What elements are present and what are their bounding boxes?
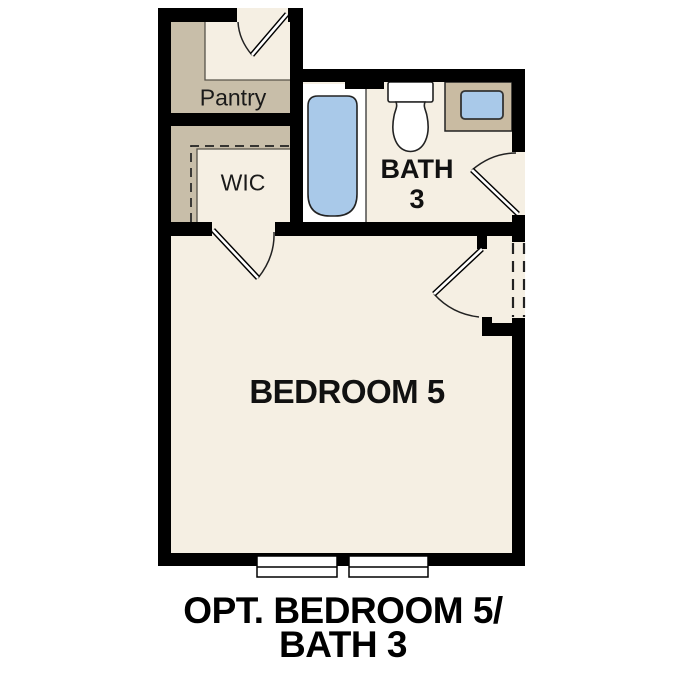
floorplan-drawing	[0, 0, 687, 687]
floorplan-canvas: Pantry WIC BATH3 BEDROOM 5 OPT. BEDROOM …	[0, 0, 687, 687]
toilet-tank	[388, 82, 433, 102]
wall-vestibule-bottom	[482, 323, 514, 336]
wall-right-lower	[512, 318, 525, 566]
wall-tub-stub	[345, 82, 384, 89]
wall-right-upper	[512, 69, 525, 152]
wall-top-left	[158, 8, 237, 22]
plan-caption: OPT. BEDROOM 5/BATH 3	[183, 594, 502, 662]
wall-bedroom-door-stub	[477, 236, 487, 249]
bath-door-gap	[512, 152, 525, 215]
wall-right-middle	[512, 215, 525, 242]
wall-bottom	[158, 553, 525, 566]
bath-label-line1: BATH	[381, 154, 454, 184]
wall-pantry-wic-divider	[158, 113, 303, 126]
room-label-bedroom: BEDROOM 5	[249, 374, 444, 410]
wall-vestibule-stub	[482, 317, 492, 323]
room-label-pantry: Pantry	[200, 85, 266, 110]
caption-line2: BATH 3	[279, 624, 407, 665]
vanity-sink-icon	[461, 91, 503, 119]
bathtub-icon	[308, 96, 357, 216]
toilet-bowl	[393, 102, 428, 152]
pantry-door-clearance	[205, 22, 290, 80]
room-label-bath: BATH3	[381, 154, 454, 214]
wall-wic-bottom-left	[158, 222, 212, 236]
wall-left	[158, 8, 171, 566]
bath-label-line2: 3	[409, 184, 424, 214]
wall-bath-top	[290, 69, 525, 82]
wall-bath-bottom	[275, 222, 513, 236]
wic-door-gap	[212, 222, 275, 236]
room-label-wic: WIC	[221, 170, 266, 195]
